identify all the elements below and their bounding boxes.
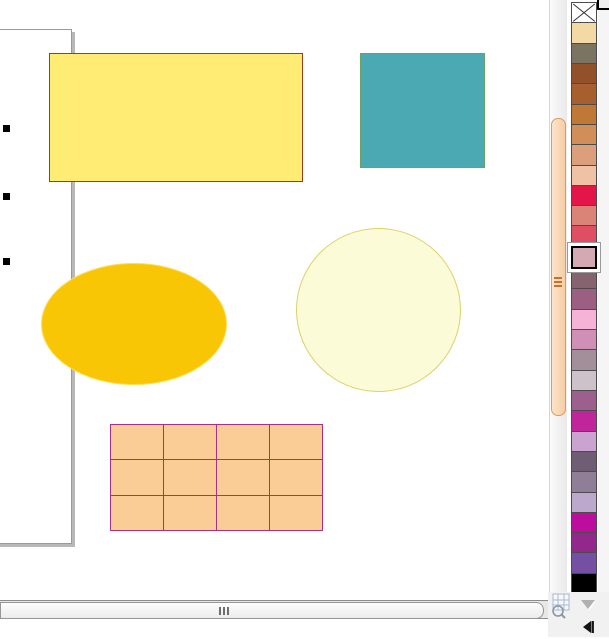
selection-handle-bottom[interactable] xyxy=(3,258,10,265)
table-cell[interactable] xyxy=(270,496,322,530)
palette-swatch-wheat[interactable] xyxy=(571,22,597,43)
palette-swatch-gray-purple[interactable] xyxy=(571,471,597,492)
palette-swatch-ochre[interactable] xyxy=(571,104,597,125)
palette-swatch-light-gray-lilac[interactable] xyxy=(571,370,597,391)
palette-swatch-olive-gray[interactable] xyxy=(571,43,597,64)
palette-scroll-up-button[interactable] xyxy=(597,0,609,10)
palette-swatch-dusty-rose[interactable] xyxy=(571,205,597,226)
table-cell[interactable] xyxy=(164,425,216,459)
navigator-icon xyxy=(548,592,577,621)
palette-swatch-plum[interactable] xyxy=(571,288,597,309)
window-right-margin xyxy=(598,0,609,637)
table-cell[interactable] xyxy=(111,496,163,530)
x-no-color-icon xyxy=(572,3,596,22)
skip-start-button[interactable] xyxy=(580,620,596,634)
vertical-scrollbar-track[interactable] xyxy=(549,0,567,592)
palette-swatch-black[interactable] xyxy=(571,573,597,594)
table-cell[interactable] xyxy=(217,425,269,459)
palette-swatch-lilac[interactable] xyxy=(571,431,597,452)
table-cell[interactable] xyxy=(270,460,322,494)
table-cell[interactable] xyxy=(164,460,216,494)
palette-swatch-peach[interactable] xyxy=(571,165,597,186)
palette-swatch-orchid[interactable] xyxy=(571,329,597,350)
gold-ellipse-shape[interactable] xyxy=(41,263,227,385)
palette-swatch-fuchsia[interactable] xyxy=(571,512,597,533)
palette-swatch-dusty-pink[interactable] xyxy=(571,246,597,269)
palette-swatch-crimson[interactable] xyxy=(571,185,597,206)
table-cell[interactable] xyxy=(111,460,163,494)
palette-swatch-violet[interactable] xyxy=(571,552,597,573)
palette-swatch-copper[interactable] xyxy=(571,124,597,145)
yellow-rectangle-shape[interactable] xyxy=(49,53,303,182)
horizontal-scrollbar-thumb[interactable] xyxy=(0,602,544,619)
chevron-down-icon xyxy=(581,600,595,609)
horizontal-scrollbar-track[interactable] xyxy=(0,600,548,619)
selection-handle-middle[interactable] xyxy=(3,193,10,200)
scrollbar-grip-icon xyxy=(554,277,563,289)
table-cell[interactable] xyxy=(164,496,216,530)
palette-swatch-no-color[interactable] xyxy=(571,2,597,23)
skip-start-icon xyxy=(580,620,596,634)
table-cell[interactable] xyxy=(111,425,163,459)
table-shape[interactable] xyxy=(110,424,323,531)
palette-swatch-purple-mauve[interactable] xyxy=(571,390,597,411)
teal-square-shape[interactable] xyxy=(360,53,485,168)
palette-swatch-rust[interactable] xyxy=(571,83,597,104)
palette-swatch-gray-mauve[interactable] xyxy=(571,268,597,289)
palette-swatch-light-lilac[interactable] xyxy=(571,492,597,513)
pale-yellow-circle-shape[interactable] xyxy=(296,228,461,392)
palette-swatch-saddle-brown[interactable] xyxy=(571,63,597,84)
palette-swatch-dark-magenta[interactable] xyxy=(571,532,597,553)
color-palette xyxy=(571,2,597,594)
table-cell[interactable] xyxy=(217,460,269,494)
selection-handle-top[interactable] xyxy=(3,125,10,132)
vertical-scrollbar-thumb[interactable] xyxy=(551,118,566,416)
palette-swatch-magenta[interactable] xyxy=(571,410,597,431)
palette-swatch-dark-gray-purple[interactable] xyxy=(571,451,597,472)
palette-scroll-down-button[interactable] xyxy=(579,598,597,612)
document-navigator-button[interactable] xyxy=(548,592,577,621)
palette-swatch-raspberry[interactable] xyxy=(571,225,597,246)
table-cell[interactable] xyxy=(270,425,322,459)
palette-swatch-mauve-gray[interactable] xyxy=(571,349,597,370)
scrollbar-grip-icon xyxy=(219,607,229,615)
table-cell[interactable] xyxy=(217,496,269,530)
palette-swatch-light-pink[interactable] xyxy=(571,309,597,330)
palette-swatch-salmon[interactable] xyxy=(571,144,597,165)
